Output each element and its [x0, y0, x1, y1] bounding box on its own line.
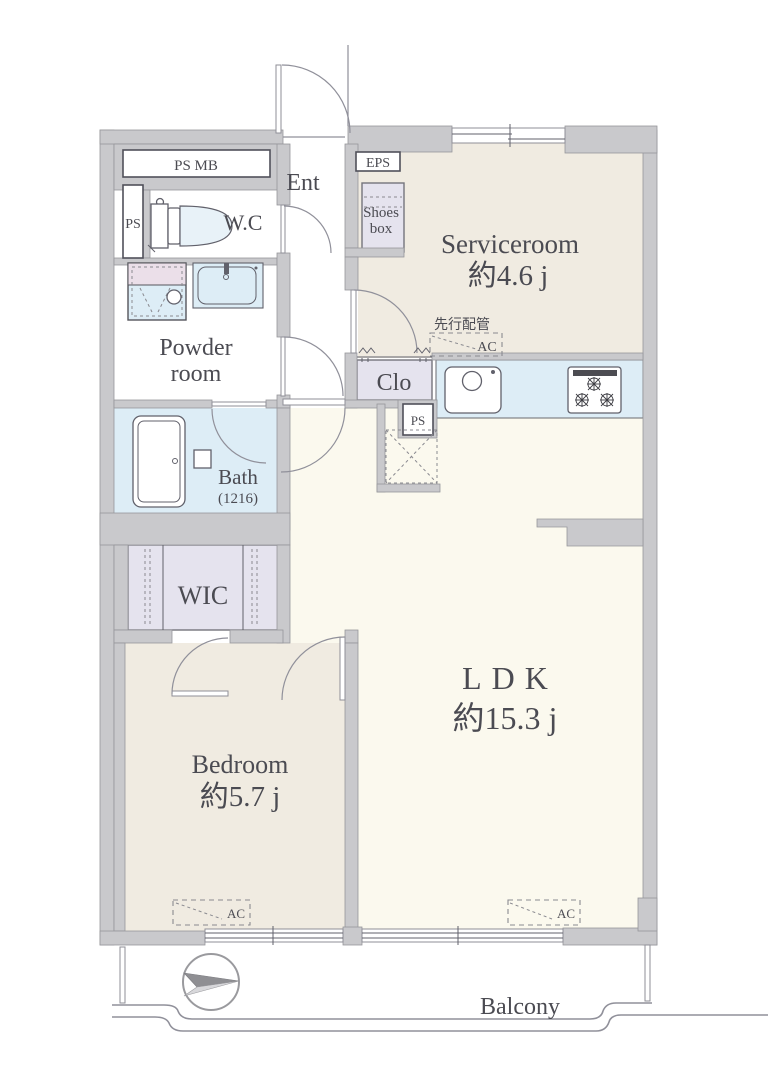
- balcony-railing-inner: [112, 1003, 652, 1019]
- vanity-sink: [193, 263, 263, 308]
- ldk-window: [362, 926, 563, 945]
- ac-label-bedroom: AC: [227, 906, 245, 921]
- ps-mb-label: PS MB: [174, 158, 218, 174]
- bath-label: Bath: [218, 465, 258, 489]
- ac-label-ldk: AC: [557, 906, 575, 921]
- closet-label: Clo: [377, 370, 412, 396]
- bedroom-window: [205, 926, 343, 945]
- balcony-partition-left: [120, 947, 125, 1003]
- shoes-box-label-1: Shoes: [363, 205, 399, 221]
- stove: [568, 367, 621, 413]
- advance-piping-label: 先行配管: [434, 317, 490, 333]
- ps-toilet-label: PS: [125, 217, 141, 232]
- bedroom-size: 約5.7 j: [200, 780, 281, 813]
- compass-icon: [183, 954, 239, 1010]
- wc-label: W.C: [224, 210, 263, 235]
- serviceroom-size: 約4.6 j: [468, 259, 549, 292]
- ac-label-serviceroom: AC: [477, 340, 496, 355]
- kitchen-sink: [445, 367, 501, 413]
- entrance-door: [276, 45, 350, 137]
- ps-kitchen-label: PS: [411, 413, 425, 428]
- shoes-box-label-2: box: [370, 221, 393, 237]
- serviceroom-label: Serviceroom: [441, 229, 579, 259]
- floor-plan: PS MB PS W.C Ent EPS Shoes box Servicero…: [0, 0, 768, 1086]
- wic-label: WIC: [178, 581, 229, 610]
- balcony: [112, 945, 768, 1031]
- powder-room-label-2: room: [171, 361, 222, 387]
- bedroom-label: Bedroom: [192, 750, 289, 779]
- eps-label: EPS: [366, 156, 390, 171]
- bath-counter: [194, 450, 211, 468]
- bath-size: (1216): [218, 491, 258, 507]
- ldk-label: LDK: [462, 660, 558, 696]
- entrance-label: Ent: [286, 170, 320, 196]
- balcony-railing-outer: [112, 1015, 768, 1031]
- ldk-size: 約15.3 j: [453, 700, 558, 736]
- powder-room-label-1: Powder: [159, 335, 232, 361]
- balcony-label: Balcony: [480, 994, 560, 1020]
- balcony-partition-right: [645, 945, 650, 1001]
- washing-machine-pan: [128, 263, 186, 320]
